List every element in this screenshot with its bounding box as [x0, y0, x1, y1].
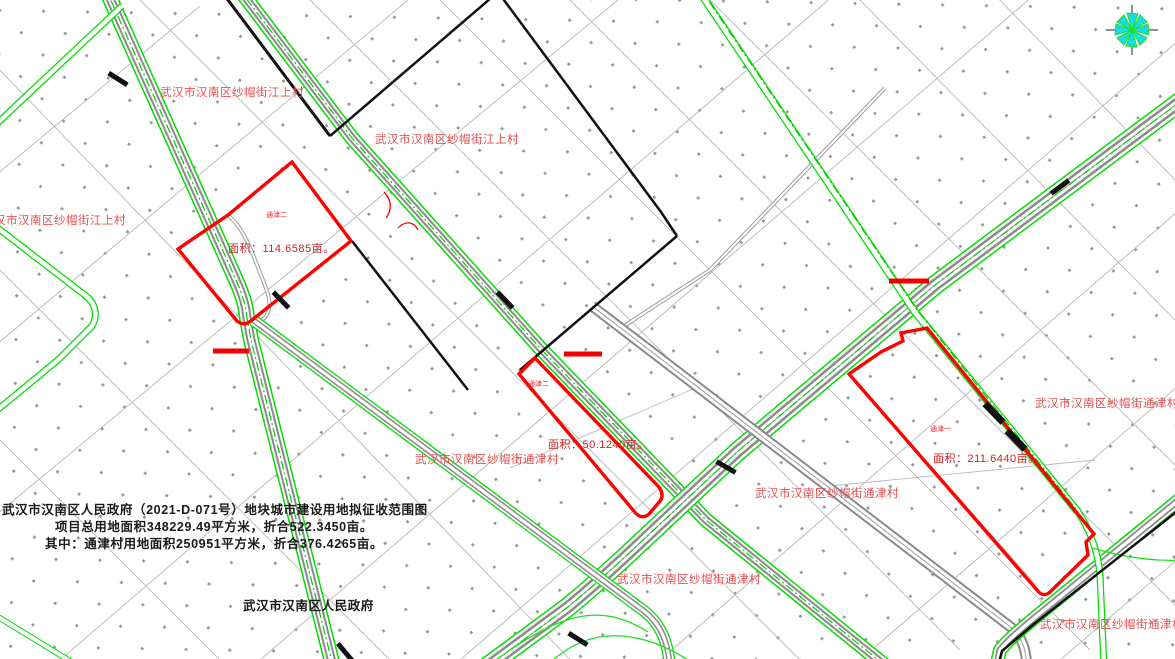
village-label: 武汉市汉南区纱帽街江上村 — [375, 132, 519, 146]
parcel-tag: 通津一 — [930, 424, 951, 433]
area-label: 面积：211.6440亩。 — [933, 451, 1040, 465]
area-label: 面积：114.6585亩。 — [228, 241, 335, 255]
village-label: 武汉市汉南区纱帽街通津村 — [1040, 617, 1175, 631]
map-canvas: 武汉市汉南区纱帽街江上村 武汉市汉南区纱帽街江上村 武汉市汉南区纱帽街江上村 武… — [0, 0, 1175, 659]
title-line-2: 项目总用地面积348229.49平方米，折合522.3450亩。 — [55, 519, 373, 534]
village-label: 武汉市汉南区纱帽街江上村 — [0, 213, 126, 227]
village-label: 武汉市汉南区纱帽街通津村 — [415, 452, 559, 466]
title-line-1: 武汉市汉南区人民政府（2021-D-071号）地块城市建设用地拟征收范围图 — [2, 502, 428, 517]
village-label: 武汉市汉南区纱帽街江上村 — [160, 85, 304, 99]
title-signature: 武汉市汉南区人民政府 — [243, 598, 374, 613]
village-label: 武汉市汉南区纱帽街通津村 — [755, 486, 899, 500]
village-label: 武汉市汉南区纱帽街通津村 — [1035, 396, 1175, 410]
title-line-3: 其中：通津村用地面积250951平方米，折合376.4265亩。 — [45, 536, 383, 551]
parcel-tag: 通津二 — [266, 210, 287, 219]
parcel-tag: 通津二 — [528, 379, 549, 388]
area-label: 面积：50.1240亩。 — [548, 437, 649, 451]
village-label: 武汉市汉南区纱帽街通津村 — [617, 572, 761, 586]
cadastral-map: 武汉市汉南区纱帽街江上村 武汉市汉南区纱帽街江上村 武汉市汉南区纱帽街江上村 武… — [0, 0, 1175, 659]
